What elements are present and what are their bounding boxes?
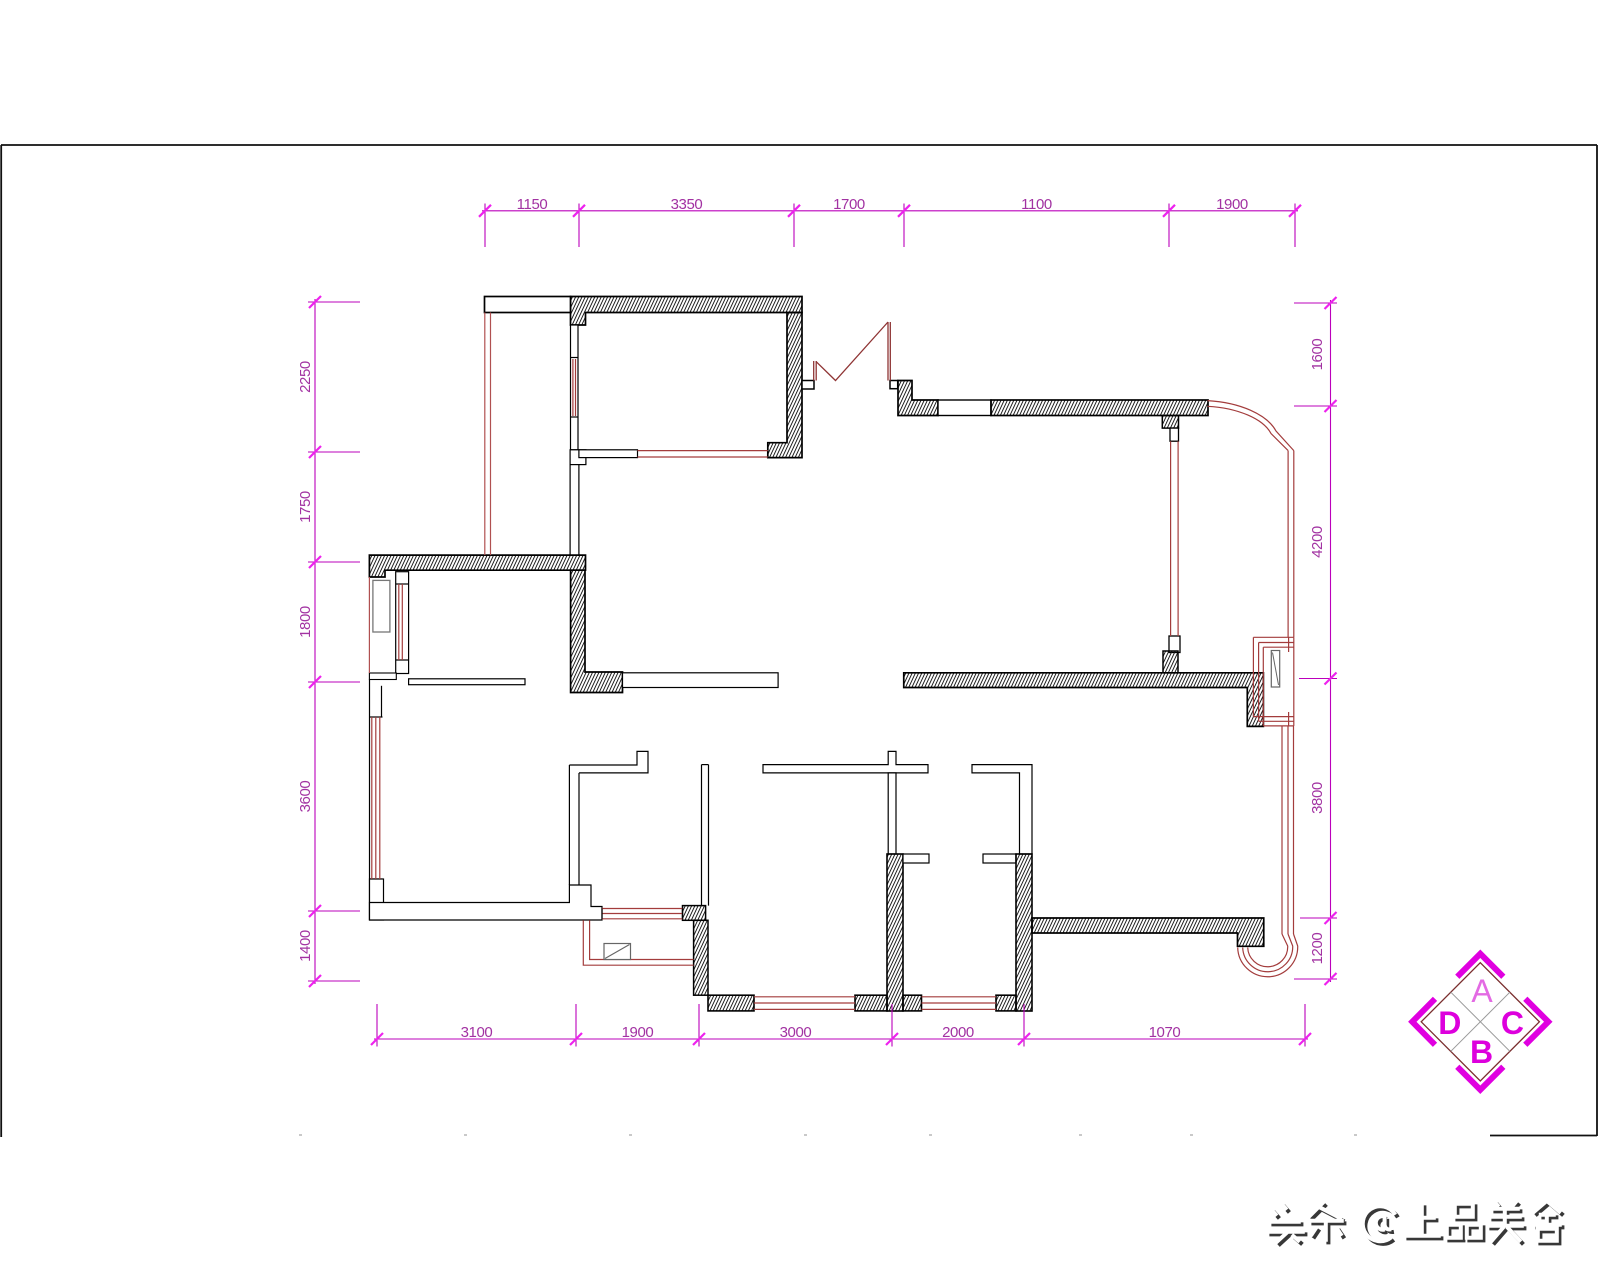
svg-text:3000: 3000 [780, 1024, 812, 1041]
svg-text:D: D [1438, 1005, 1461, 1041]
svg-text:C: C [1501, 1005, 1524, 1041]
svg-text:2000: 2000 [942, 1024, 974, 1041]
svg-text:1070: 1070 [1149, 1024, 1181, 1041]
svg-text:4200: 4200 [1309, 526, 1326, 558]
svg-text:3100: 3100 [461, 1024, 493, 1041]
svg-text:3800: 3800 [1309, 782, 1326, 814]
svg-text:1400: 1400 [297, 930, 314, 962]
svg-text:1800: 1800 [297, 606, 314, 638]
svg-text:1200: 1200 [1309, 933, 1326, 965]
svg-text:3350: 3350 [671, 196, 703, 213]
svg-text:2250: 2250 [297, 361, 314, 393]
svg-text:1700: 1700 [833, 196, 865, 213]
svg-text:B: B [1470, 1034, 1493, 1070]
svg-text:1900: 1900 [622, 1024, 654, 1041]
svg-text:1100: 1100 [1021, 196, 1052, 213]
svg-text:1900: 1900 [1216, 196, 1248, 213]
svg-text:1150: 1150 [517, 196, 548, 213]
svg-text:1750: 1750 [297, 491, 314, 523]
svg-text:A: A [1471, 973, 1493, 1009]
svg-text:3600: 3600 [297, 781, 314, 813]
svg-text:1600: 1600 [1309, 339, 1326, 371]
